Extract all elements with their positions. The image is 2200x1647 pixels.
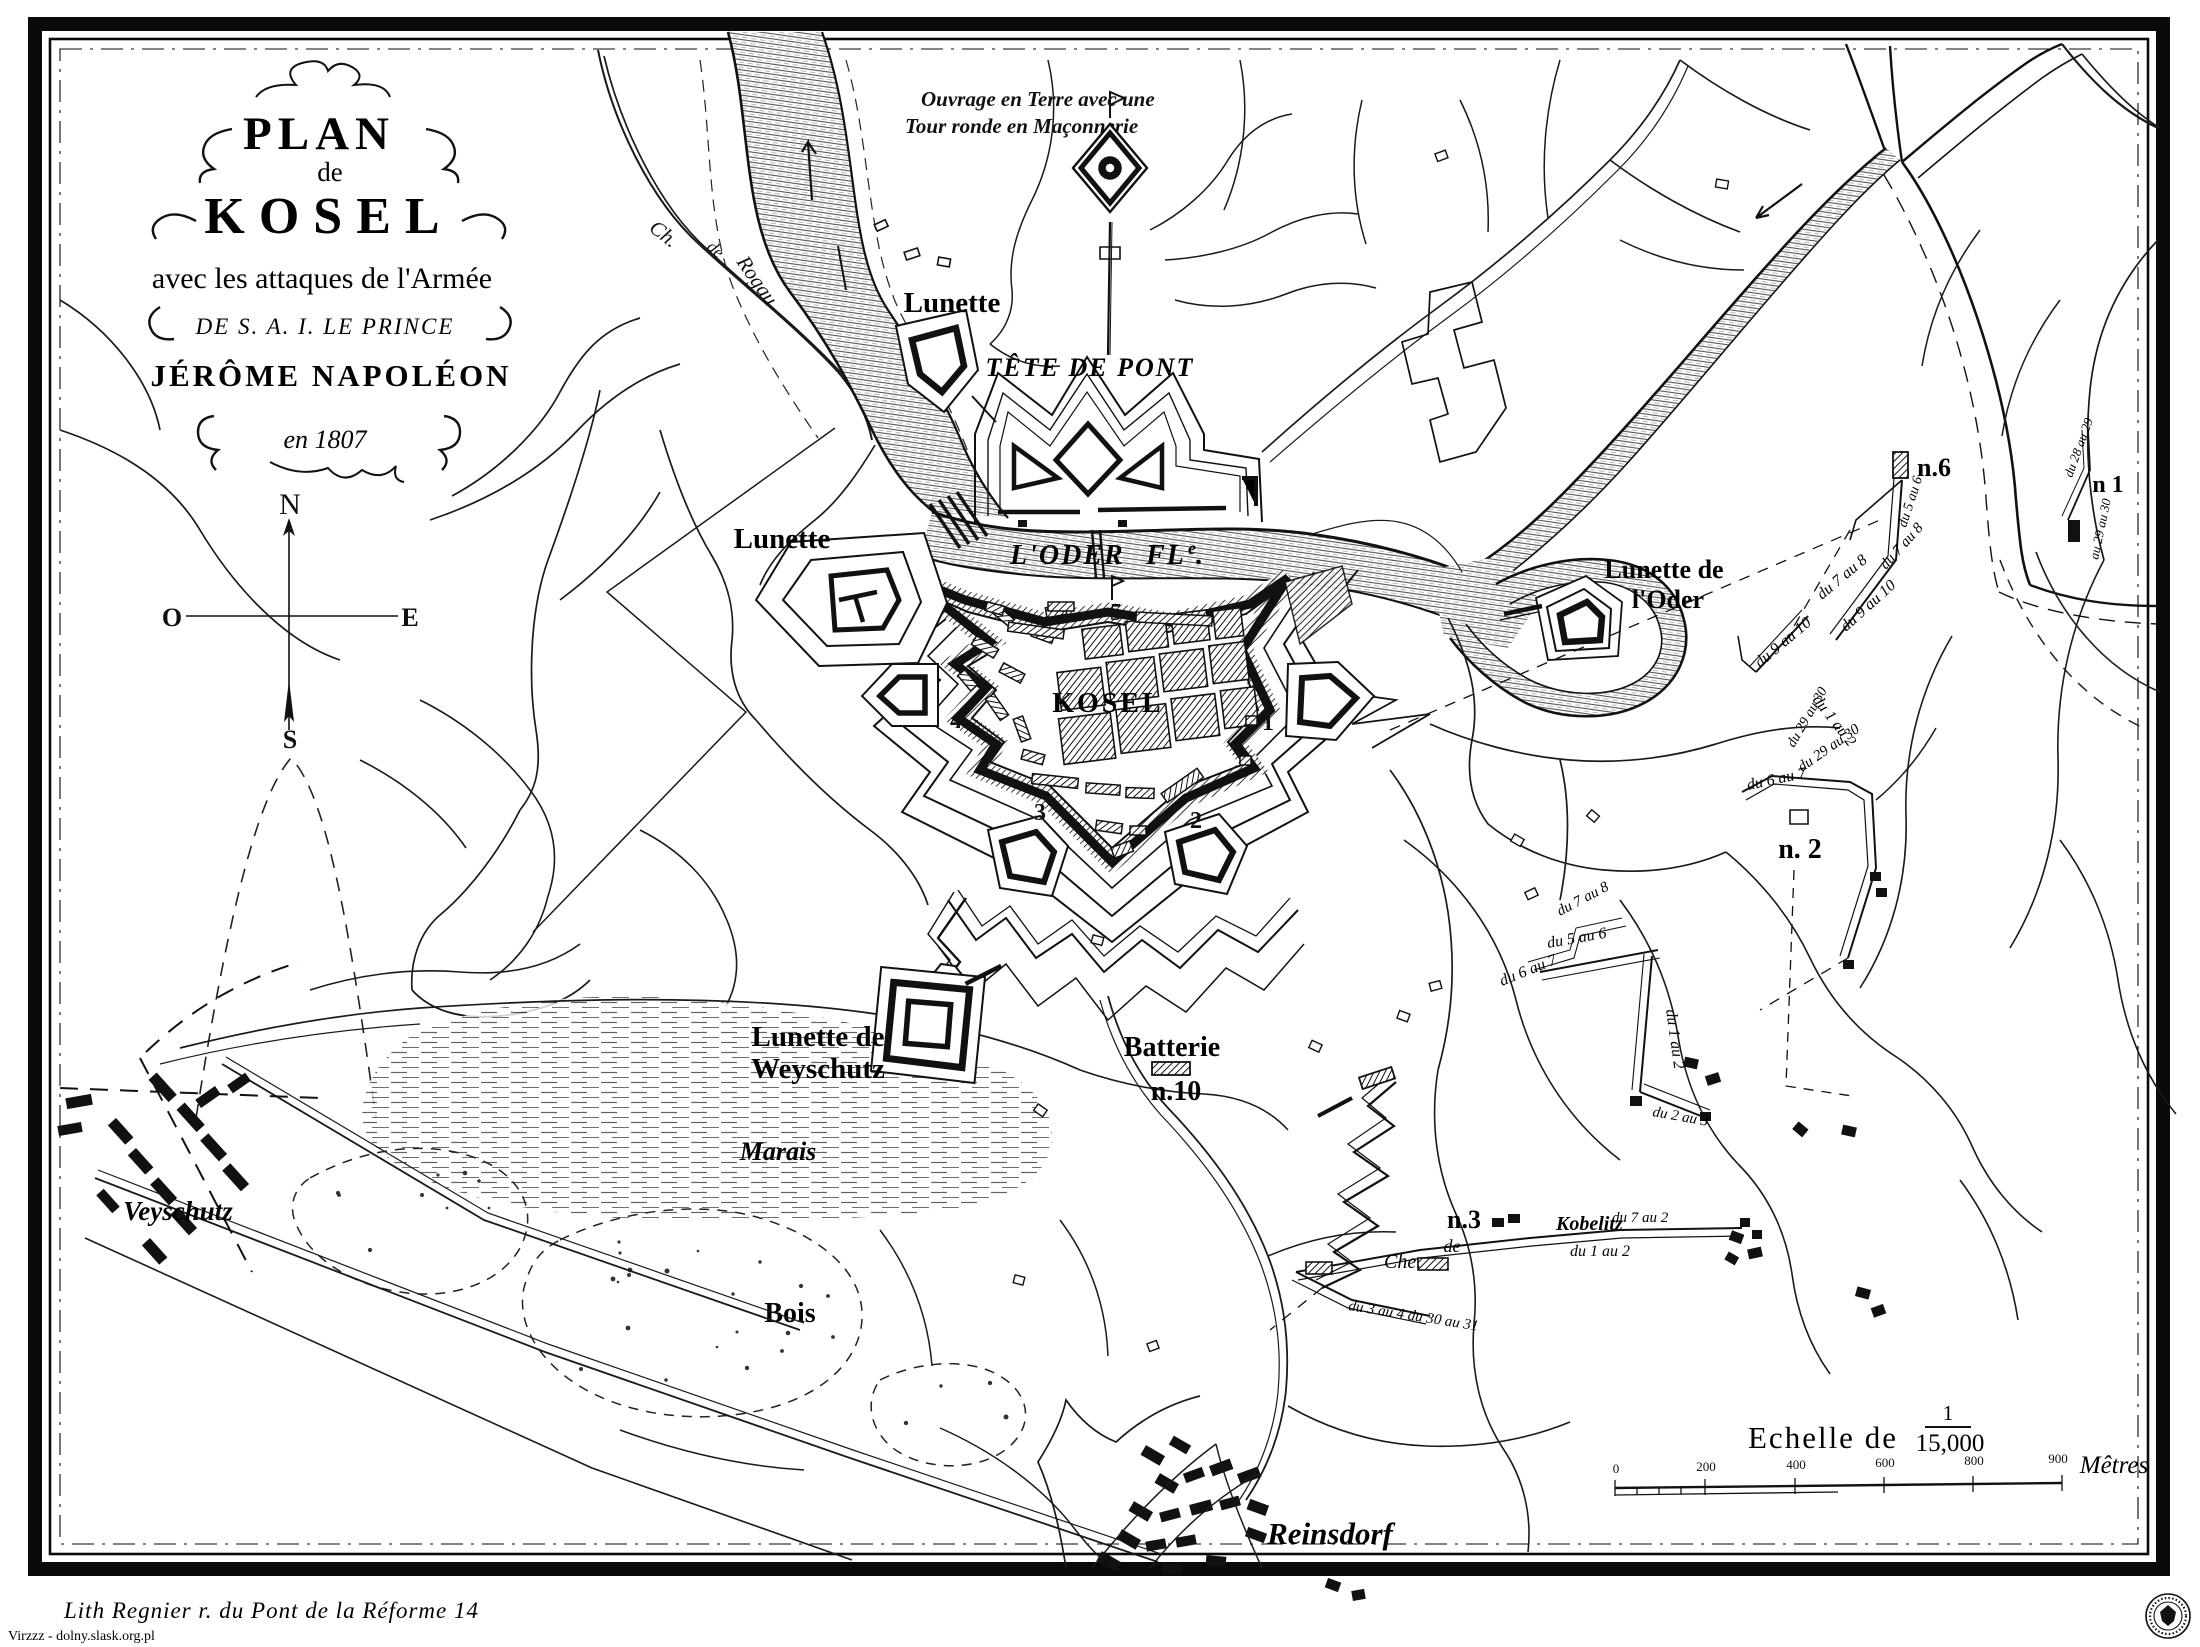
svg-text:3: 3 [1034,800,1046,826]
svg-text:L'ODER: L'ODER [1009,540,1125,571]
svg-text:Batterie: Batterie [1124,1032,1220,1063]
svg-text:n. 2: n. 2 [1778,834,1822,865]
svg-text:Veyschutz: Veyschutz [123,1196,233,1226]
svg-text:1: 1 [1943,1401,1954,1425]
svg-text:Lunette de: Lunette de [1604,555,1723,584]
svg-text:Bois: Bois [764,1298,815,1329]
svg-text:Weyschutz: Weyschutz [751,1053,885,1085]
svg-text:0: 0 [1613,1461,1620,1476]
svg-text:Lunette de: Lunette de [752,1021,885,1053]
svg-text:KOSEL: KOSEL [204,188,453,245]
svg-text:5: 5 [1110,600,1122,626]
svg-text:E: E [401,603,418,632]
svg-text:l'Oder: l'Oder [1632,585,1704,614]
svg-text:du 1 au 2: du 1 au 2 [1570,1243,1630,1260]
svg-text:Virzzz - dolny.slask.org.pl: Virzzz - dolny.slask.org.pl [8,1629,155,1644]
svg-text:N: N [279,488,301,521]
svg-text:PLAN: PLAN [243,108,395,160]
svg-text:1: 1 [1262,710,1274,736]
svg-text:de: de [317,157,343,187]
svg-text:JÉRÔME NAPOLÉON: JÉRÔME NAPOLÉON [150,358,511,393]
svg-text:Ouvrage en Terre avec une: Ouvrage en Terre avec une [921,87,1155,111]
svg-text:Lith Regnier r. du Pont de la: Lith Regnier r. du Pont de la Réforme 14 [63,1598,479,1623]
svg-text:avec les attaques de l'Armée: avec les attaques de l'Armée [152,262,492,295]
svg-text:de: de [1444,1236,1461,1256]
svg-text:2: 2 [1190,808,1202,834]
svg-text:n.10: n.10 [1151,1076,1202,1107]
svg-text:.: . [1196,540,1205,571]
svg-text:800: 800 [1964,1453,1984,1468]
svg-text:900: 900 [2048,1451,2068,1466]
svg-text:n 1: n 1 [2092,472,2123,498]
svg-text:200: 200 [1696,1459,1716,1474]
svg-text:FL: FL [1145,540,1186,571]
svg-text:O: O [162,603,182,632]
svg-text:Echelle de: Echelle de [1748,1420,1898,1455]
svg-text:Lunette: Lunette [904,287,1001,319]
svg-text:Lunette: Lunette [734,523,831,555]
svg-text:Che.: Che. [1384,1251,1421,1273]
svg-text:Mêtres: Mêtres [2079,1452,2149,1479]
svg-text:Marais: Marais [739,1137,817,1166]
svg-text:4: 4 [950,708,962,734]
svg-text:en 1807: en 1807 [283,425,367,454]
svg-text:400: 400 [1786,1457,1806,1472]
svg-text:S: S [283,725,297,754]
svg-text:KOSEL: KOSEL [1052,688,1163,719]
svg-text:600: 600 [1875,1455,1895,1470]
svg-text:n.6: n.6 [1917,453,1951,482]
svg-text:Kobelitz: Kobelitz [1555,1213,1623,1235]
svg-text:n.3: n.3 [1447,1205,1481,1234]
svg-text:Reinsdorf: Reinsdorf [1266,1516,1395,1551]
svg-text:DE S. A. I. LE PRINCE: DE S. A. I. LE PRINCE [195,314,455,339]
svg-text:TÊTE DE PONT: TÊTE DE PONT [986,353,1195,382]
